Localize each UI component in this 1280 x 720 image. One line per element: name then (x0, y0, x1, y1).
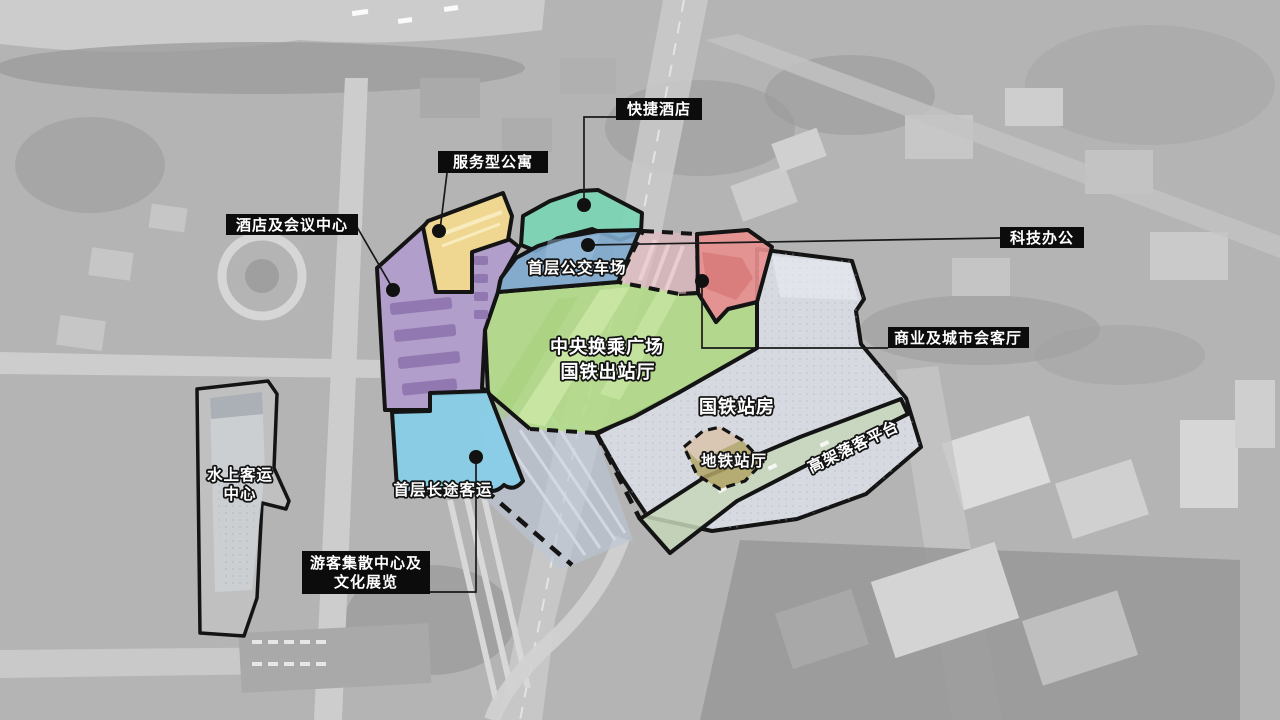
label-commercial-lounge: 商业及城市会客厅 (888, 327, 1029, 348)
label-water-terminal-line1: 水上客运 (207, 465, 273, 484)
label-serviced-apartment-text: 服务型公寓 (453, 153, 533, 171)
label-bus-terminal: 首层公交车场 (527, 258, 626, 277)
label-metro-hall: 地铁站厅 (701, 451, 767, 470)
dot-commercial-lounge (695, 274, 709, 288)
planning-diagram: 快捷酒店 服务型公寓 酒店及会议中心 科技办公 商业及城市会客厅 游客集散中心及… (0, 0, 1280, 720)
dot-serviced-apartment (432, 224, 446, 238)
label-hotel-conference: 酒店及会议中心 (226, 214, 358, 235)
label-serviced-apartment: 服务型公寓 (438, 151, 548, 173)
label-tech-office: 科技办公 (1000, 227, 1084, 248)
dot-tourist-center (469, 450, 483, 464)
label-tourist-center-line2: 文化展览 (334, 573, 398, 591)
label-express-hotel: 快捷酒店 (616, 98, 702, 120)
label-water-terminal-line2: 中心 (223, 484, 256, 503)
dot-tech-office (581, 238, 595, 252)
label-tourist-center: 游客集散中心及 文化展览 (302, 551, 430, 594)
label-tech-office-text: 科技办公 (1010, 229, 1074, 247)
diagram-canvas: 快捷酒店 服务型公寓 酒店及会议中心 科技办公 商业及城市会客厅 游客集散中心及… (0, 0, 1280, 720)
label-hotel-conference-text: 酒店及会议中心 (236, 216, 348, 234)
label-tourist-center-line1: 游客集散中心及 (310, 554, 422, 572)
label-central-plaza-line2: 国铁出站厅 (561, 361, 656, 382)
label-central-plaza-line1: 中央换乘广场 (550, 336, 664, 357)
label-commercial-lounge-text: 商业及城市会客厅 (894, 329, 1022, 347)
dot-express-hotel (577, 198, 591, 212)
label-express-hotel-text: 快捷酒店 (627, 100, 691, 118)
label-long-distance-bus: 首层长途客运 (393, 480, 492, 499)
dot-hotel-conference (386, 283, 400, 297)
label-rail-station: 国铁站房 (699, 396, 775, 417)
